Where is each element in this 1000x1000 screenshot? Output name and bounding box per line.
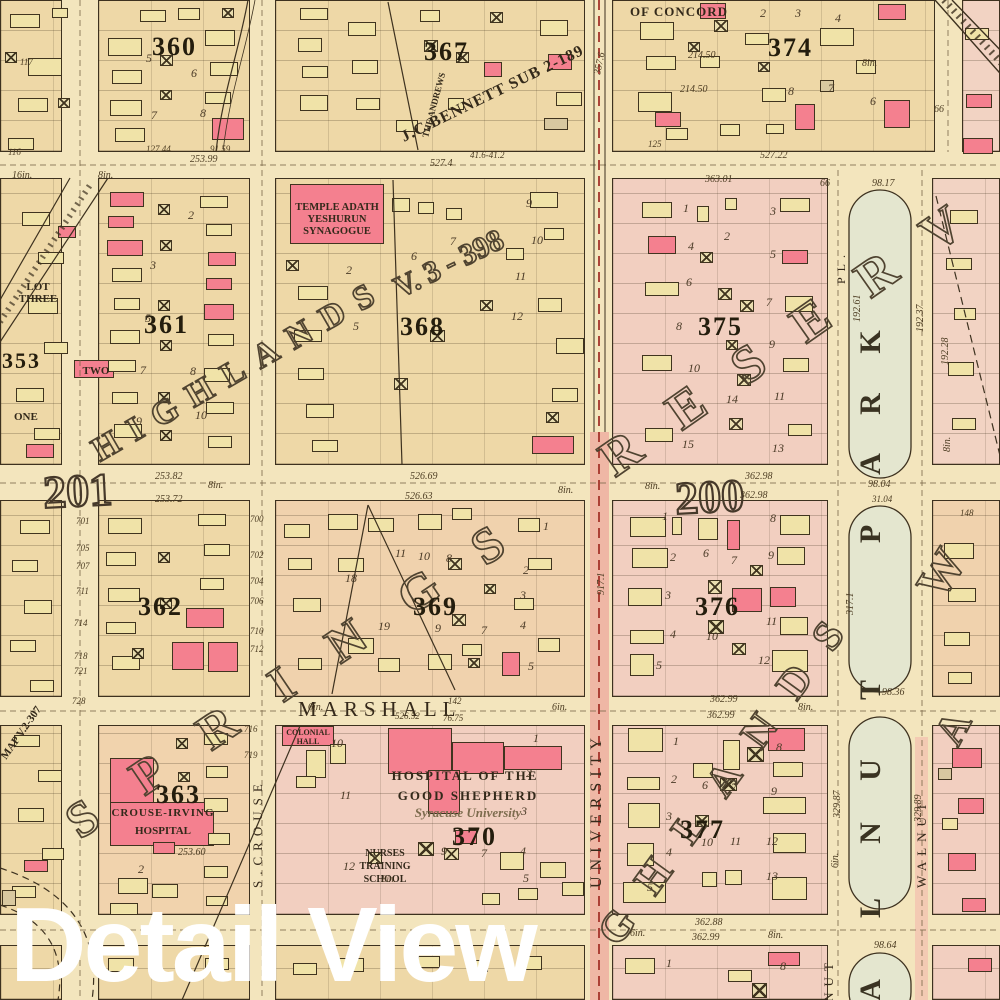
map-label: 9	[136, 414, 142, 428]
map-label: 8	[780, 959, 786, 973]
map-label: OF CONCORD	[630, 4, 728, 19]
map-label: 1	[533, 731, 539, 745]
map-label: 3	[520, 804, 527, 818]
map-line	[944, 0, 1000, 68]
map-label: 214.50	[688, 50, 716, 61]
map-label: 6in.	[830, 853, 841, 868]
map-label: 701	[76, 516, 90, 526]
map-label: 527.22	[760, 150, 788, 161]
map-label: HIGHLANDS	[86, 270, 394, 469]
map-label: 362.88	[694, 917, 723, 928]
map-label: 8in.	[98, 170, 113, 181]
map-label: 714	[74, 618, 88, 628]
map-label: TWO	[83, 365, 110, 377]
map-label: 329.87	[832, 790, 843, 820]
map-label: 192.28	[940, 338, 951, 366]
map-label: 728	[72, 696, 86, 706]
map-label: R	[854, 393, 887, 415]
map-label: 711	[76, 586, 89, 596]
map-label: YESHURUN	[308, 214, 367, 225]
map-label: 117	[20, 57, 33, 67]
map-label: 363	[156, 780, 201, 809]
map-label: 2	[724, 229, 730, 243]
map-label: 363.01	[704, 174, 733, 185]
map-label: 19	[378, 619, 390, 633]
map-label: HALL	[297, 737, 320, 746]
map-label: 3	[769, 204, 776, 218]
map-label: 2	[670, 550, 676, 564]
map-label: 9	[441, 844, 447, 858]
map-label: 253.99	[190, 154, 218, 165]
map-label: 12	[343, 859, 355, 873]
map-label: 8	[676, 319, 682, 333]
map-label: 1	[662, 509, 668, 523]
map-label: 9	[771, 784, 777, 798]
map-label: 18	[345, 571, 357, 585]
map-label: 8	[446, 551, 452, 565]
map-label: 12	[766, 834, 778, 848]
map-label: 2	[760, 6, 766, 20]
map-label: 7	[731, 553, 738, 567]
map-label: 9	[769, 337, 775, 351]
map-label: 7	[151, 108, 158, 122]
map-label: 7	[828, 81, 835, 95]
map-label: 11	[515, 269, 526, 283]
map-label: 1	[543, 519, 549, 533]
map-label: 5	[656, 658, 662, 672]
map-label: 6	[702, 778, 708, 792]
map-label: 2	[138, 862, 144, 876]
map-label: 375	[698, 312, 743, 341]
map-label: 7	[481, 623, 488, 637]
map-label: 6	[686, 275, 692, 289]
map-label: HOSPITAL OF THE	[392, 768, 539, 783]
map-label: S.CROUSE	[250, 778, 265, 888]
map-label: 10	[195, 408, 207, 422]
map-label: 6	[703, 546, 709, 560]
map-label: 317.1	[845, 593, 856, 617]
map-label: 718	[74, 651, 88, 661]
map-label: 707	[76, 561, 90, 571]
map-label: GHLANDS	[589, 589, 872, 954]
map-label: 8in.	[558, 485, 573, 496]
map-label: 721	[74, 666, 88, 676]
map-annotation-layer: HIGHLANDSV. 3 - 398SPRINGSRESERVGHLANDS2…	[0, 0, 1000, 1000]
map-label: 13	[766, 869, 778, 883]
map-label: 10	[706, 629, 718, 643]
map-label: TEMPLE ADATH	[295, 202, 379, 213]
map-label: 362.99	[709, 694, 738, 705]
map-label: 6	[870, 94, 876, 108]
map-label: 142	[448, 696, 462, 706]
map-label: 11	[774, 389, 785, 403]
map-label: 705	[76, 543, 90, 553]
map-label: 2	[523, 563, 529, 577]
map-label: 98.36	[882, 687, 905, 698]
map-label: 702	[250, 550, 264, 560]
map-label: 6in.	[552, 702, 567, 713]
map-label: HOSPITAL	[135, 825, 191, 837]
map-label: 12	[758, 653, 770, 667]
map-label: A	[854, 979, 887, 1000]
map-label: 8in.	[768, 930, 783, 941]
map-label: 362.98	[739, 490, 768, 501]
map-label: 15	[682, 437, 694, 451]
map-label: 5	[145, 311, 151, 325]
map-label: 362.99	[691, 932, 720, 943]
map-label: 10	[688, 361, 700, 375]
map-label: 253.60	[178, 847, 206, 858]
map-label: 11	[395, 546, 406, 560]
map-label: 1	[683, 201, 689, 215]
map-label: 127.44	[146, 144, 171, 154]
map-label: 192.61	[852, 295, 863, 323]
map-label: 7	[140, 363, 147, 377]
map-label: 5	[523, 871, 529, 885]
map-label: 7	[766, 295, 773, 309]
map-label: SYNAGOGUE	[303, 226, 371, 237]
map-label: TRAINING	[359, 861, 410, 872]
map-label: 4	[835, 11, 841, 25]
map-label: 5	[647, 880, 653, 894]
map-label: 3	[794, 6, 801, 20]
map-label: 41.6-41.2	[470, 150, 505, 160]
map-label: 4	[520, 844, 526, 858]
map-label: 253.72	[155, 494, 183, 505]
map-label: 31.04	[871, 494, 893, 504]
map-label: 10	[418, 549, 430, 563]
map-label: 11	[730, 834, 741, 848]
atlas-map-detail-view: HIGHLANDSV. 3 - 398SPRINGSRESERVGHLANDS2…	[0, 0, 1000, 1000]
map-label: U	[854, 759, 887, 781]
map-label: 4	[688, 239, 694, 253]
map-line	[216, 0, 248, 152]
map-label: 8in.	[645, 481, 660, 492]
map-label: 704	[250, 576, 264, 586]
map-label: COLONIAL	[286, 728, 330, 737]
map-label: W	[906, 539, 976, 608]
map-label: A	[854, 453, 887, 475]
map-label: 8in.	[862, 58, 877, 69]
map-label: 710	[250, 626, 264, 636]
map-label: 706	[250, 596, 264, 606]
map-label: 7	[731, 780, 738, 794]
map-label: 3	[149, 258, 156, 272]
map-label: 6in.	[308, 702, 323, 713]
map-label: 3	[664, 588, 671, 602]
map-label: 368	[400, 312, 445, 341]
map-label: 1	[673, 734, 679, 748]
map-label: ONE	[14, 411, 38, 423]
map-label: 2	[188, 208, 194, 222]
map-label: UNIVERSITY	[588, 732, 605, 888]
map-label: 10	[701, 835, 713, 849]
map-line	[223, 0, 255, 152]
map-label: 8	[200, 106, 206, 120]
map-label: 214.50	[680, 84, 708, 95]
map-label: 8	[770, 511, 776, 525]
map-label: 526.69	[410, 471, 438, 482]
map-label: 716	[244, 724, 258, 734]
map-label: 8	[788, 84, 794, 98]
map-label: 148	[960, 508, 974, 518]
map-label: 9	[768, 548, 774, 562]
map-label: PL.	[834, 249, 848, 284]
map-label: L	[854, 898, 887, 918]
map-label: 362	[138, 592, 183, 621]
map-label: 719	[244, 750, 258, 760]
map-label: 8	[190, 364, 196, 378]
map-line	[0, 178, 108, 342]
map-label: P	[854, 525, 887, 543]
map-label: WALNUT	[821, 957, 836, 1000]
map-label: LOT	[26, 281, 50, 293]
map-label: V. 3 - 398	[389, 223, 509, 304]
map-label: 7	[450, 234, 457, 248]
map-label: 4	[670, 627, 676, 641]
map-label: 3	[665, 809, 672, 823]
map-label: 369	[413, 592, 458, 621]
map-label: 6in.	[630, 928, 645, 939]
map-label: 11	[340, 788, 351, 802]
map-label: THREE	[19, 293, 58, 305]
map-label: CROUSE-IRVING	[111, 807, 214, 819]
map-label: 7	[481, 846, 488, 860]
map-label: 5	[353, 319, 359, 333]
map-label: 1	[666, 956, 672, 970]
map-label: MAP V.2-307	[0, 704, 44, 762]
map-label: 6	[191, 66, 197, 80]
map-label: 5	[528, 659, 534, 673]
map-label: 201	[42, 463, 114, 518]
map-label: 98.64	[874, 940, 897, 951]
map-label: 374	[768, 33, 813, 62]
map-label: 362.99	[706, 710, 735, 721]
map-label: 4	[520, 618, 526, 632]
map-label: 8in.	[382, 874, 396, 884]
map-label: 12	[511, 309, 523, 323]
map-label: 712	[250, 644, 264, 654]
map-label: 370	[452, 822, 497, 851]
map-label: 98.17	[872, 178, 896, 189]
map-label: 8in.	[798, 702, 813, 713]
map-label: 2	[346, 263, 352, 277]
map-label: 98.04	[868, 479, 891, 490]
map-label: K	[854, 330, 887, 354]
map-label: 192.37	[915, 304, 926, 333]
map-label: NURSES	[365, 848, 405, 859]
map-label: 253.82	[155, 471, 183, 482]
map-label: 10	[331, 736, 343, 750]
map-label: 526.52	[395, 711, 420, 721]
map-label: 329.89	[913, 795, 924, 824]
map-label: 5	[146, 51, 152, 65]
map-label: Syracuse University	[415, 805, 522, 820]
map-label: 4	[666, 845, 672, 859]
map-label: 9	[526, 196, 532, 210]
map-label: 367	[424, 37, 469, 66]
map-label: 527.4	[430, 158, 453, 169]
map-label: 360	[152, 32, 197, 61]
map-label: 14	[726, 392, 738, 406]
map-label: 2	[671, 772, 677, 786]
map-label: 66	[934, 104, 944, 115]
map-label: 16in.	[12, 170, 32, 181]
map-label: 66	[820, 178, 830, 189]
map-label: 8	[776, 740, 782, 754]
map-label: 2	[526, 766, 532, 780]
map-label: 5	[770, 247, 776, 261]
map-label: 200	[674, 469, 746, 524]
map-label: 526.63	[405, 491, 433, 502]
map-label: 6	[411, 249, 417, 263]
map-label: 700	[250, 514, 264, 524]
map-label: 917.1	[596, 573, 607, 596]
detail-view-caption: Detail View	[10, 892, 535, 998]
map-label: RESERV	[589, 170, 1000, 488]
map-label: 9	[435, 621, 441, 635]
map-label: 76.75	[443, 713, 464, 723]
map-label: 11	[766, 614, 777, 628]
map-label: 13	[772, 441, 784, 455]
map-label: 3	[519, 588, 526, 602]
walnut-park-median	[849, 717, 911, 909]
map-label: 8in.	[208, 480, 223, 491]
map-label: 8in.	[942, 437, 953, 452]
map-label: N	[854, 822, 887, 844]
map-label: 116	[8, 147, 21, 157]
map-label: 125	[648, 139, 662, 149]
map-label: GOOD SHEPHERD	[398, 788, 539, 803]
map-label: 362.98	[744, 471, 773, 482]
map-label: 91.59	[210, 144, 231, 154]
map-label: 353	[2, 348, 41, 373]
map-label: 376	[695, 592, 740, 621]
map-label: 10	[531, 233, 543, 247]
